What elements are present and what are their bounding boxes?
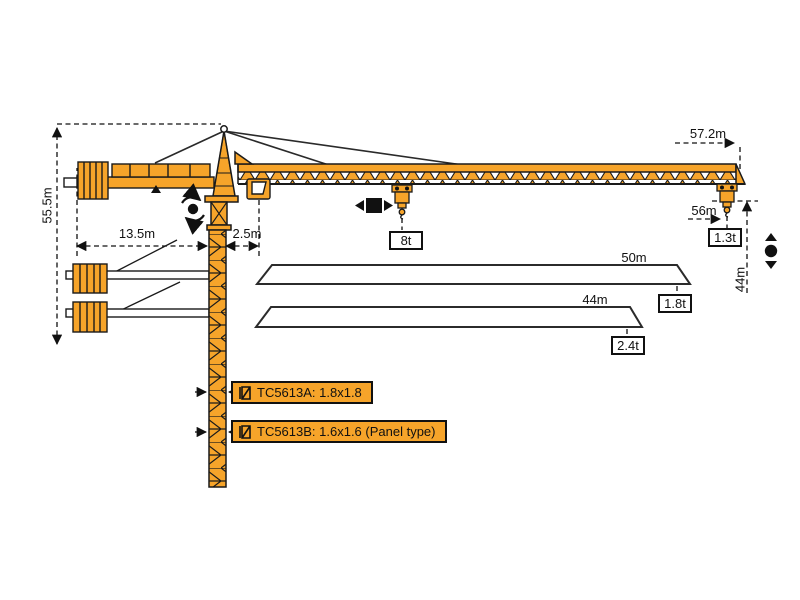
counter-jib-tip	[64, 178, 78, 187]
jib-option-44m-label: 44m	[571, 292, 619, 307]
hook-icon	[724, 207, 730, 213]
trolley-mid	[392, 185, 412, 219]
jib-option-44m-tip-load-badge: 2.4t	[611, 336, 645, 355]
dim-max-radius-label: 57.2m	[680, 126, 736, 141]
model-plate-text: TC5613B: 1.6x1.6 (Panel type)	[257, 424, 436, 439]
jib-profiles	[256, 265, 690, 327]
dim-tip-radius-label: 56m	[686, 203, 722, 218]
tower-head	[213, 126, 235, 196]
model-plate-text: TC5613A: 1.8x1.8	[257, 385, 362, 400]
main-jib	[235, 152, 745, 184]
counter-jib	[64, 162, 214, 199]
jib-option-50m-label: 50m	[610, 250, 658, 265]
max-load-badge: 8t	[389, 231, 423, 250]
mast-section-icon	[238, 424, 252, 440]
spare-counterweights	[66, 264, 209, 332]
tie-bars	[155, 131, 484, 168]
counterweight-block	[78, 162, 108, 199]
operator-cab	[247, 179, 270, 199]
tip-load-badge: 1.3t	[708, 228, 742, 247]
counterweight-block	[73, 264, 107, 293]
slewing-platform	[205, 196, 238, 202]
hook-icon	[399, 209, 405, 215]
counter-jib-deck	[112, 164, 210, 177]
dim-hook-height-label: 55.5m	[40, 176, 55, 236]
jib-option-50m-tip-load-badge: 1.8t	[658, 294, 692, 313]
dim-tip-hook-height-label: 44m	[733, 256, 748, 304]
model-plate-tc5613a: TC5613A: 1.8x1.8	[231, 381, 373, 404]
slewing-icon	[182, 197, 204, 221]
apex-pin	[221, 126, 227, 132]
cab-window	[252, 182, 266, 194]
model-plate-tc5613b: TC5613B: 1.6x1.6 (Panel type)	[231, 420, 447, 443]
jib-root	[235, 152, 252, 164]
trolley-travel-icon	[355, 198, 393, 213]
counterweight-block	[73, 302, 107, 332]
dim-counter-jib-label: 13.5m	[107, 226, 167, 241]
jib-profile-44m	[256, 307, 642, 327]
dim-offset-label: 2.5m	[222, 226, 272, 241]
hook-hoist-icon	[765, 233, 777, 269]
jib-profile-50m	[257, 265, 690, 284]
mast-sections	[209, 230, 226, 487]
mast-section-icon	[238, 385, 252, 401]
crane-diagram-page: 55.5m 13.5m 2.5m 57.2m 56m 44m 8t 1.3t 5…	[0, 0, 800, 600]
